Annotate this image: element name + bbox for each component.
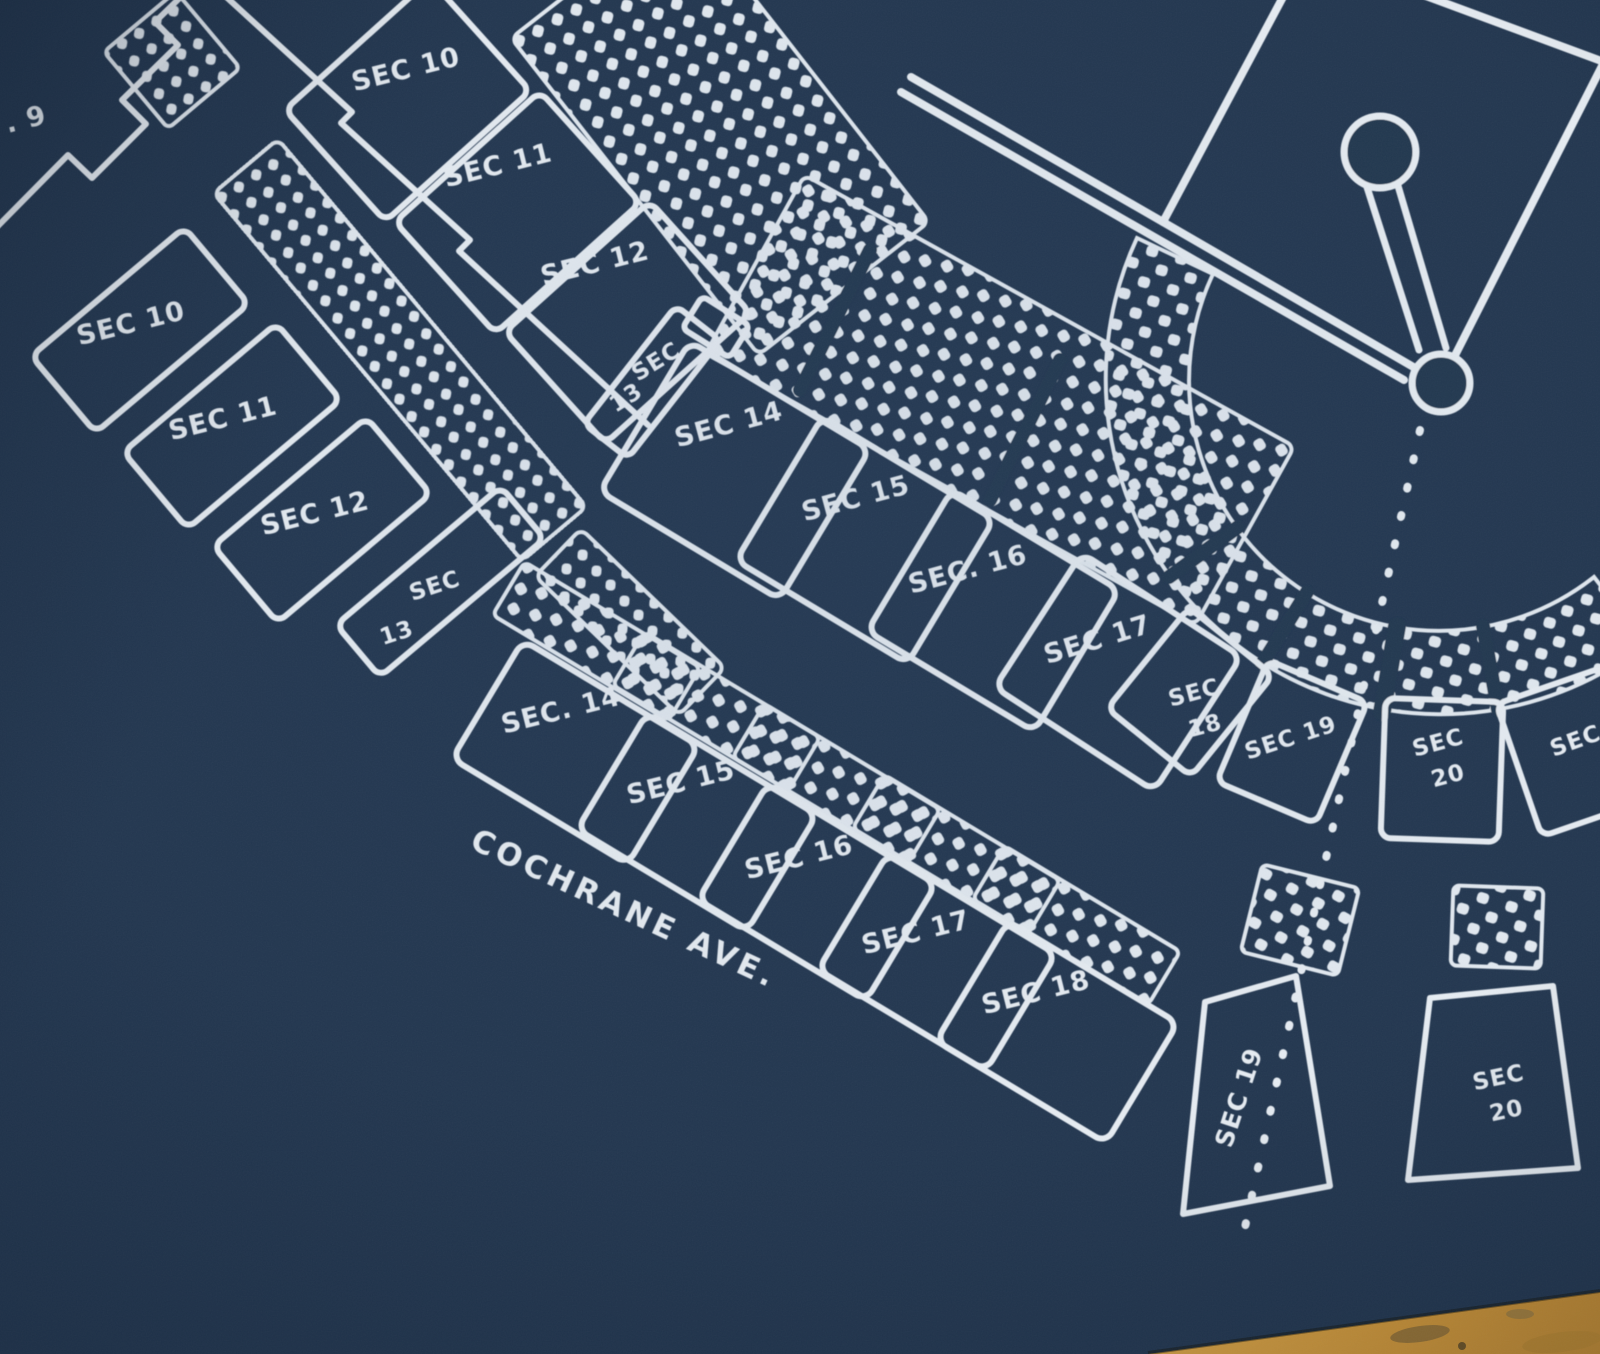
noise-overlay [0, 0, 1600, 1354]
stadium-seating-chart: . 9 SEC 10 SEC 11 SEC 12 SEC 13 SEC 10 S… [0, 0, 1600, 1354]
blueprint-photo: . 9 SEC 10 SEC 11 SEC 12 SEC 13 SEC 10 S… [0, 0, 1600, 1354]
